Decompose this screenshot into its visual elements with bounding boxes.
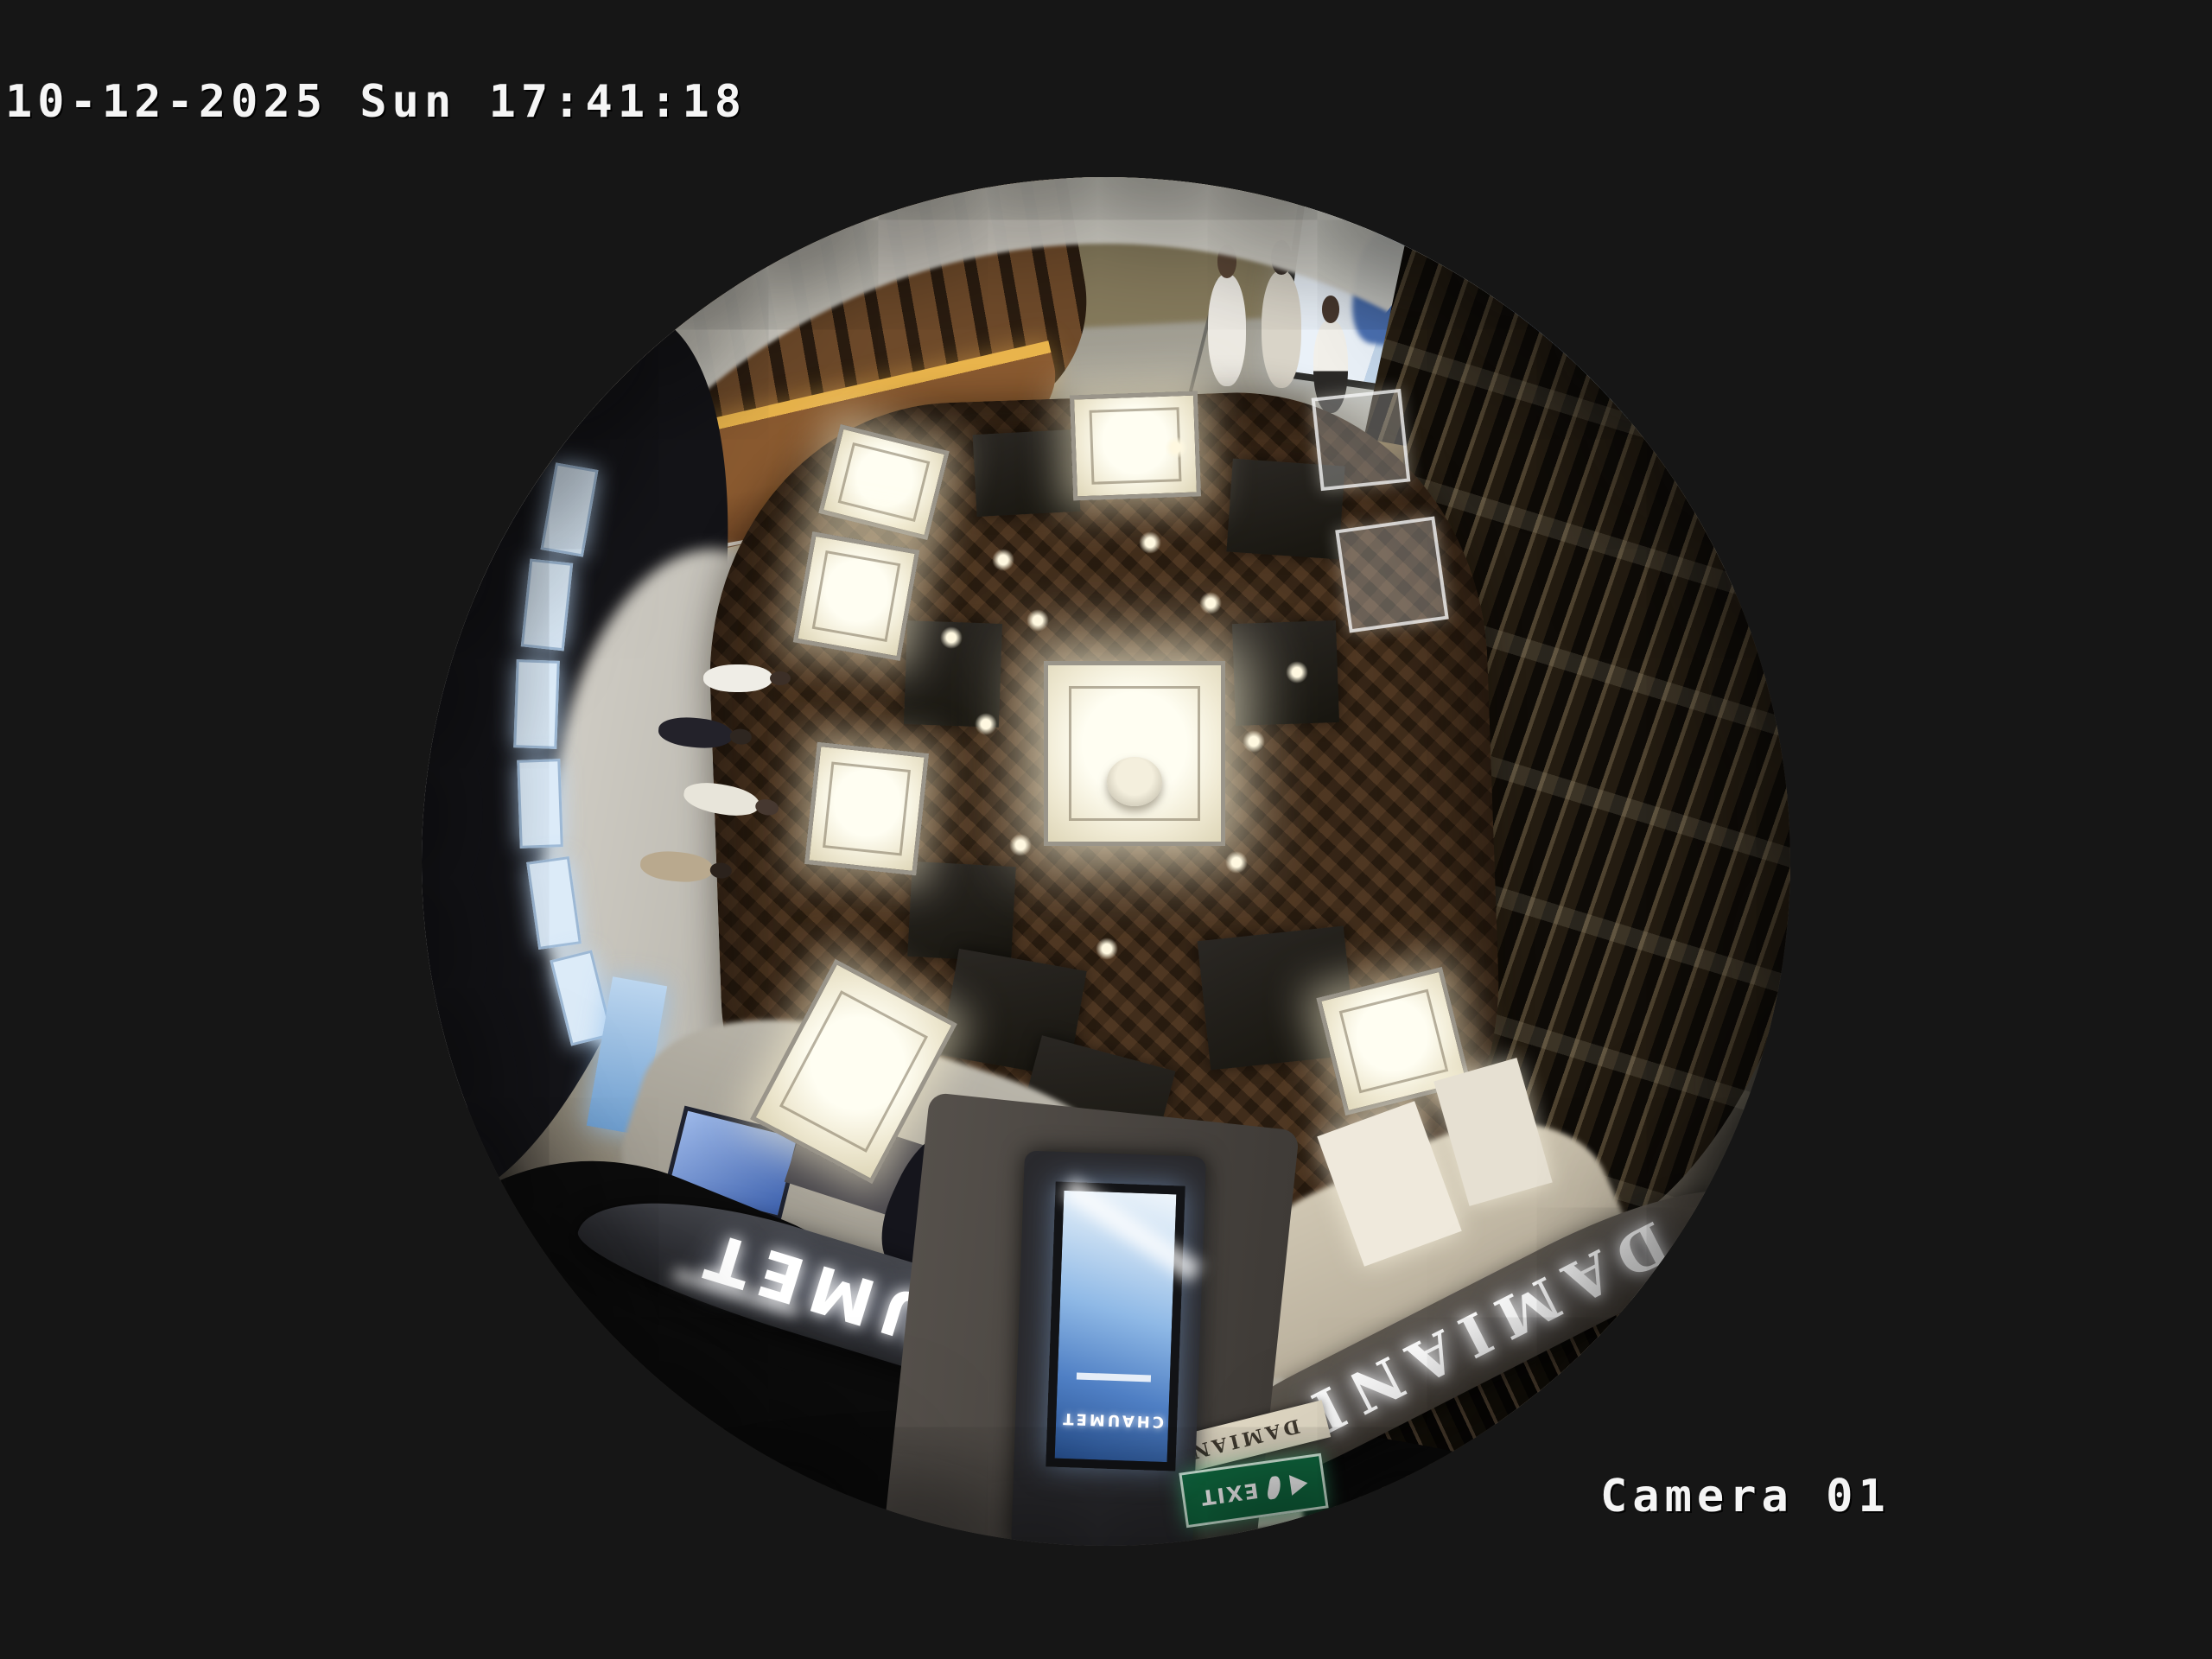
floor-sparkle xyxy=(1139,531,1161,554)
kiosk-screen: CHAUMET xyxy=(1046,1181,1185,1471)
kiosk-brand-text: CHAUMET xyxy=(1056,1409,1169,1432)
display-lightbar xyxy=(517,759,563,849)
floor-sparkle xyxy=(1243,730,1265,753)
exit-running-man-icon xyxy=(1267,1475,1283,1500)
exit-arrow-icon xyxy=(1289,1472,1309,1496)
cctv-frame: 10-12-2025 Sun 17:41:18 xyxy=(0,0,2212,1659)
person xyxy=(703,664,772,692)
dark-plinth xyxy=(973,429,1081,517)
floor-sparkle xyxy=(1165,436,1187,459)
floor-sparkle xyxy=(992,549,1014,571)
display-case xyxy=(793,531,920,661)
floor-sparkle xyxy=(1199,592,1222,614)
glass-display-cube xyxy=(1335,517,1449,633)
kiosk-caption-bar xyxy=(1077,1372,1151,1382)
floor-sparkle xyxy=(940,626,963,649)
kiosk-screen-streak xyxy=(1061,1177,1203,1282)
display-lightbar xyxy=(521,559,573,652)
dark-plinth xyxy=(907,861,1016,962)
floor-sparkle xyxy=(1027,609,1049,632)
floor-sparkle xyxy=(975,713,997,735)
fisheye-view: CHAUMET DAMIANI DAMIANI EXIT xyxy=(422,177,1790,1546)
display-case xyxy=(804,742,929,876)
floor-sparkle xyxy=(1286,661,1308,683)
osd-timestamp: 10-12-2025 Sun 17:41:18 xyxy=(5,76,747,128)
jewelry-bust xyxy=(1107,757,1162,806)
floor-sparkle xyxy=(1009,834,1032,856)
floor-sparkle xyxy=(1225,851,1248,874)
floor-sparkle xyxy=(1096,938,1118,960)
display-case-central xyxy=(1044,661,1225,846)
glass-display-cube xyxy=(1312,389,1411,491)
osd-camera-label: Camera 01 xyxy=(1600,1471,1891,1522)
display-lightbar xyxy=(513,659,560,749)
person-head xyxy=(770,671,791,686)
exit-label: EXIT xyxy=(1198,1478,1260,1510)
